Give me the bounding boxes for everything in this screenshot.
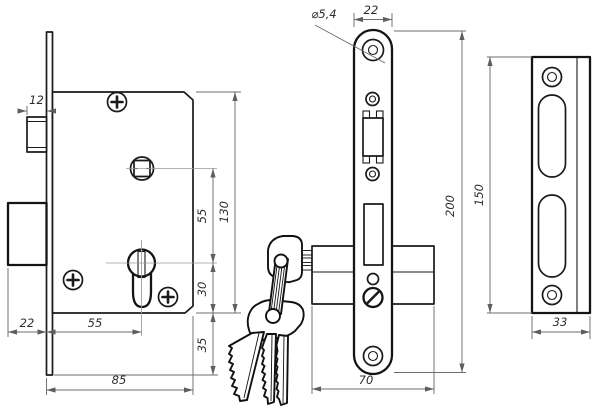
- bolt-cutout: [539, 195, 566, 277]
- dim-plate-overhang: 35: [195, 338, 209, 353]
- dim-follower-to-cylinder: 55: [195, 209, 209, 224]
- small-hole: [366, 168, 379, 181]
- screw-icon: [64, 271, 83, 290]
- dim-bolt-throw: 22: [20, 316, 35, 330]
- faceplate: [354, 30, 392, 374]
- key-blades: [229, 332, 288, 405]
- small-hole: [366, 93, 379, 106]
- small-hole: [368, 274, 379, 285]
- latch-window: [363, 111, 383, 163]
- screw-hole-top: [363, 40, 384, 61]
- slotted-screw: [364, 288, 383, 307]
- faceplate-front-view: [312, 25, 434, 374]
- dim-strike-length: 150: [472, 184, 486, 206]
- dim-cylinder-to-bottom: 30: [195, 282, 209, 297]
- drawing-canvas: 12 22 55 85 55 30 35 130: [0, 0, 600, 416]
- key-head-hole: [266, 309, 280, 323]
- dim-total-depth: 70: [359, 373, 374, 387]
- screw-icon: [159, 288, 178, 307]
- screw-hole-bottom: [364, 347, 383, 366]
- screw-icon: [108, 93, 127, 112]
- dim-latch-offset: 12: [29, 93, 44, 107]
- key-head-hole: [275, 255, 288, 268]
- dim-hole-diameter: ⌀5,4: [311, 7, 336, 21]
- technical-drawing: 12 22 55 85 55 30 35 130: [0, 0, 600, 416]
- screw-hole-bottom: [543, 286, 562, 305]
- dim-backset: 55: [88, 316, 103, 330]
- screw-hole-top: [543, 68, 562, 87]
- dim-strike-width: 33: [553, 315, 568, 329]
- lock-case-side-view: [8, 32, 217, 375]
- keys-bundle: [229, 236, 312, 405]
- latch-bolt: [27, 117, 47, 152]
- strike-plate-view: [532, 57, 590, 313]
- dim-case-height: 130: [217, 201, 231, 223]
- deadbolt: [8, 203, 47, 265]
- deadbolt-window: [364, 204, 383, 265]
- latch-cutout: [539, 95, 566, 177]
- dim-face-width: 22: [364, 3, 379, 17]
- dim-face-length: 200: [443, 195, 457, 217]
